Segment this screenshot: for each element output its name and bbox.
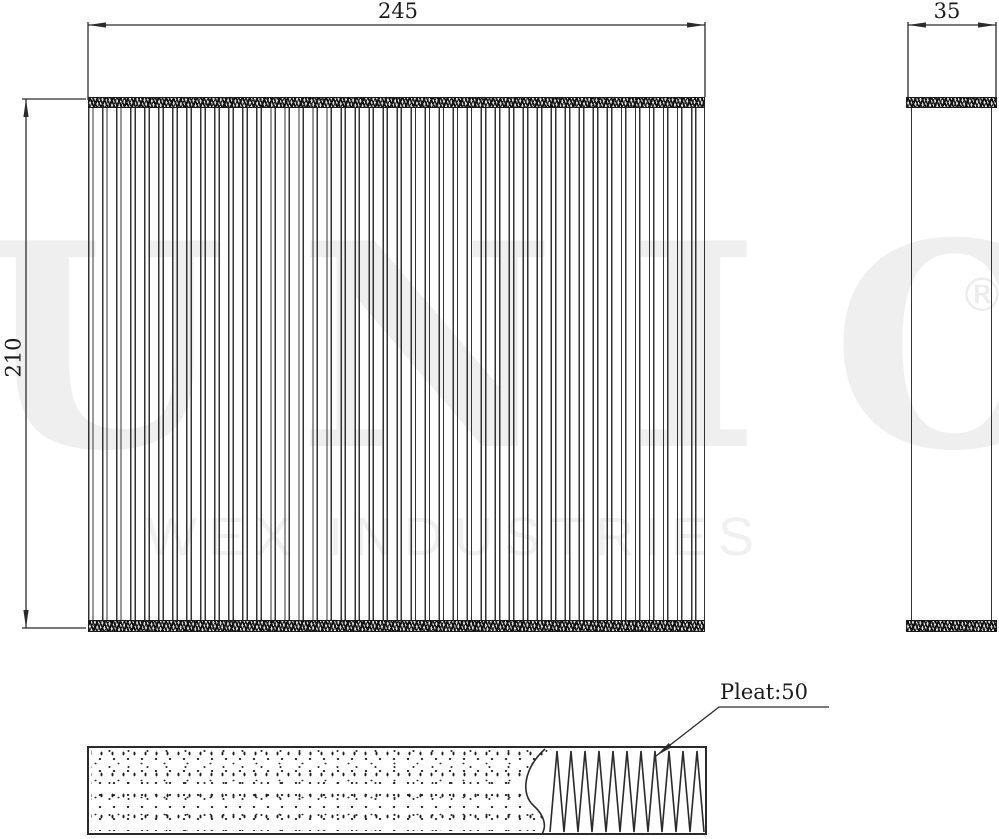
pleat-zigzag	[550, 751, 704, 832]
dim-width-linework	[88, 22, 705, 100]
media-break-line	[526, 749, 545, 834]
dim-height-label: 210	[4, 333, 25, 383]
dim-height-linework	[22, 99, 86, 628]
dim-depth-label: 35	[920, 1, 974, 22]
drawing-linework	[0, 0, 999, 839]
dim-width-label: 245	[368, 1, 428, 22]
pleat-annotation-label: Pleat:50	[720, 682, 808, 703]
drawing-canvas: UNIO ® WEX INDUSTRIES	[0, 0, 999, 839]
pleat-leader-linework	[656, 707, 829, 756]
dim-depth-linework	[908, 22, 996, 97]
